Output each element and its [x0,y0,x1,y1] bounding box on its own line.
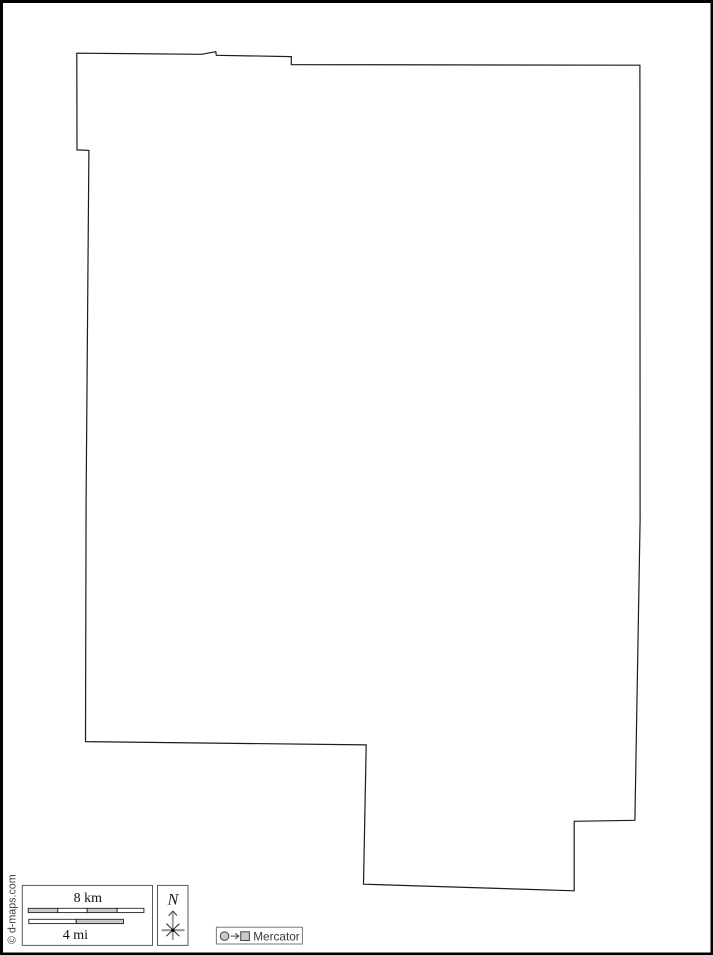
svg-text:© d-maps.com: © d-maps.com [7,874,19,944]
svg-text:N: N [167,892,180,909]
svg-text:4 mi: 4 mi [63,928,88,943]
svg-text:8 km: 8 km [74,891,103,906]
svg-text:Mercator: Mercator [253,930,300,944]
